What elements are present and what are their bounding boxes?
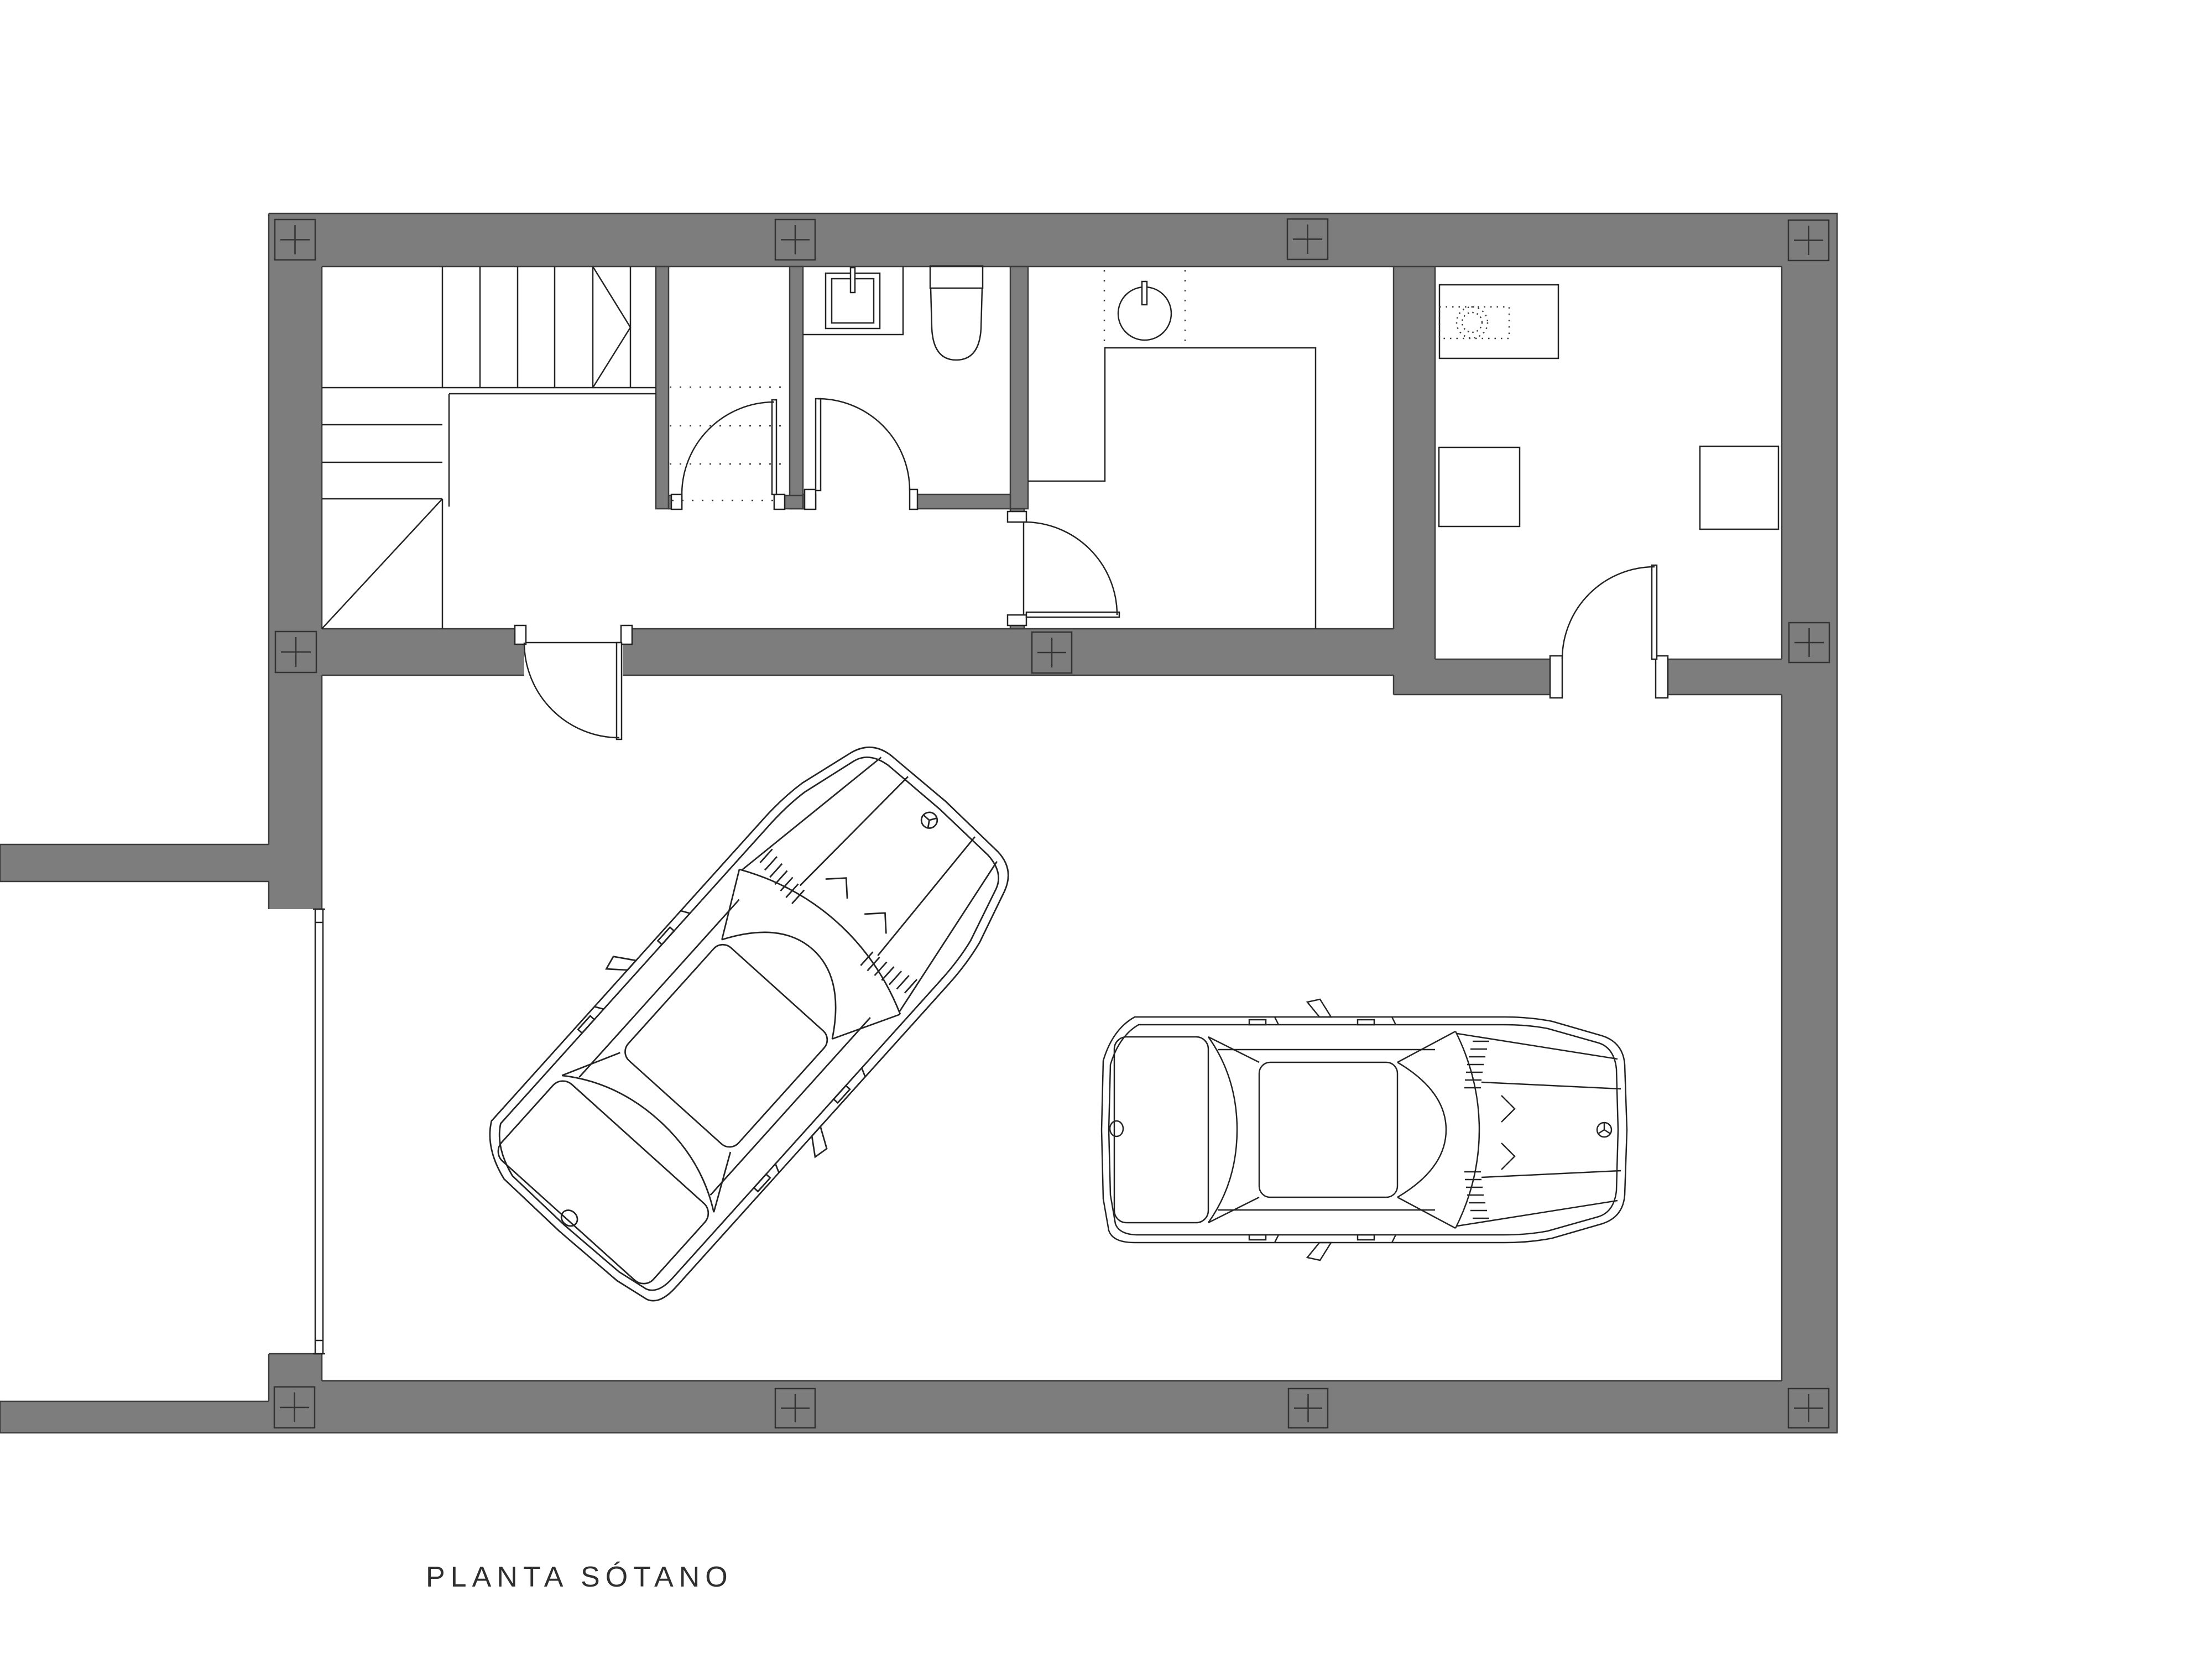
svg-text:PLANTA SÓTANO: PLANTA SÓTANO <box>426 1561 733 1593</box>
